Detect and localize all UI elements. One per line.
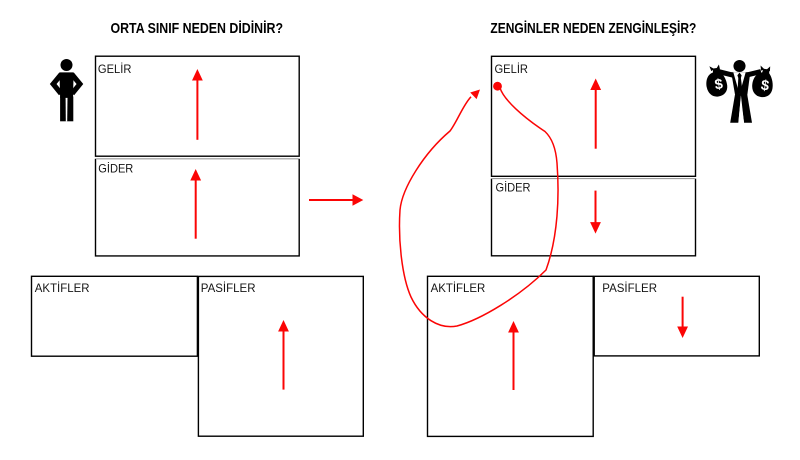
- svg-text:ZENGİNLER NEDEN ZENGİNLEŞİR?: ZENGİNLER NEDEN ZENGİNLEŞİR?: [490, 20, 696, 37]
- svg-text:GİDER: GİDER: [496, 181, 531, 195]
- svg-text:AKTİFLER: AKTİFLER: [431, 281, 486, 295]
- svg-text:AKTİFLER: AKTİFLER: [35, 281, 90, 295]
- svg-text:GELİR: GELİR: [98, 62, 132, 76]
- svg-text:ORTA SINIF NEDEN DİDİNİR?: ORTA SINIF NEDEN DİDİNİR?: [111, 20, 284, 37]
- svg-text:GİDER: GİDER: [98, 162, 133, 176]
- svg-text:PASİFLER: PASİFLER: [602, 281, 657, 295]
- svg-text:GELİR: GELİR: [495, 62, 529, 76]
- svg-text:PASİFLER: PASİFLER: [201, 281, 256, 295]
